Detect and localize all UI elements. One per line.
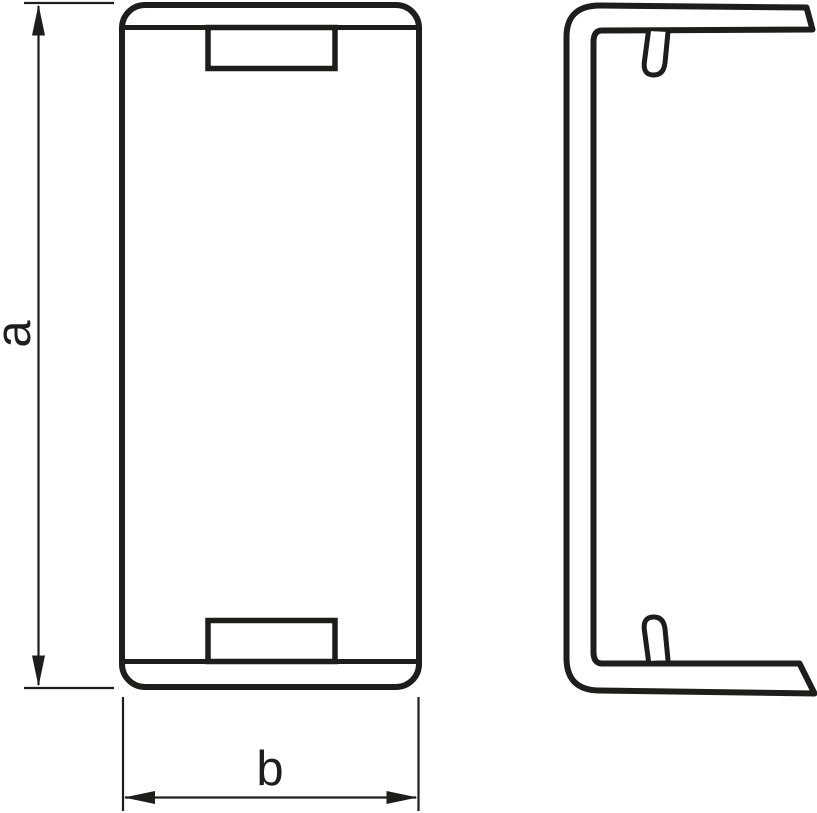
- dimension-a-arrowhead-up: [32, 5, 45, 36]
- joint-cover-dimension-drawing: a b: [0, 0, 817, 813]
- front-view-outline: [122, 5, 419, 687]
- dimension-a-arrowhead-down: [32, 656, 45, 687]
- front-view: [122, 5, 419, 687]
- technical-drawing-canvas: a b: [0, 0, 817, 813]
- side-view-profile-outline: [567, 6, 815, 694]
- dimension-a-label: a: [0, 320, 41, 348]
- side-view: [567, 6, 815, 694]
- dimension-a: a: [0, 3, 114, 688]
- dimension-b-label: b: [256, 742, 283, 796]
- front-view-top-latch-tab: [208, 28, 335, 69]
- dimension-b-arrowhead-right: [387, 791, 418, 804]
- side-view-top-retaining-hook: [644, 31, 668, 75]
- front-view-bottom-latch-tab: [208, 621, 335, 662]
- side-view-bottom-retaining-hook: [644, 617, 668, 661]
- dimension-b-arrowhead-left: [124, 791, 155, 804]
- dimension-b: b: [123, 697, 419, 811]
